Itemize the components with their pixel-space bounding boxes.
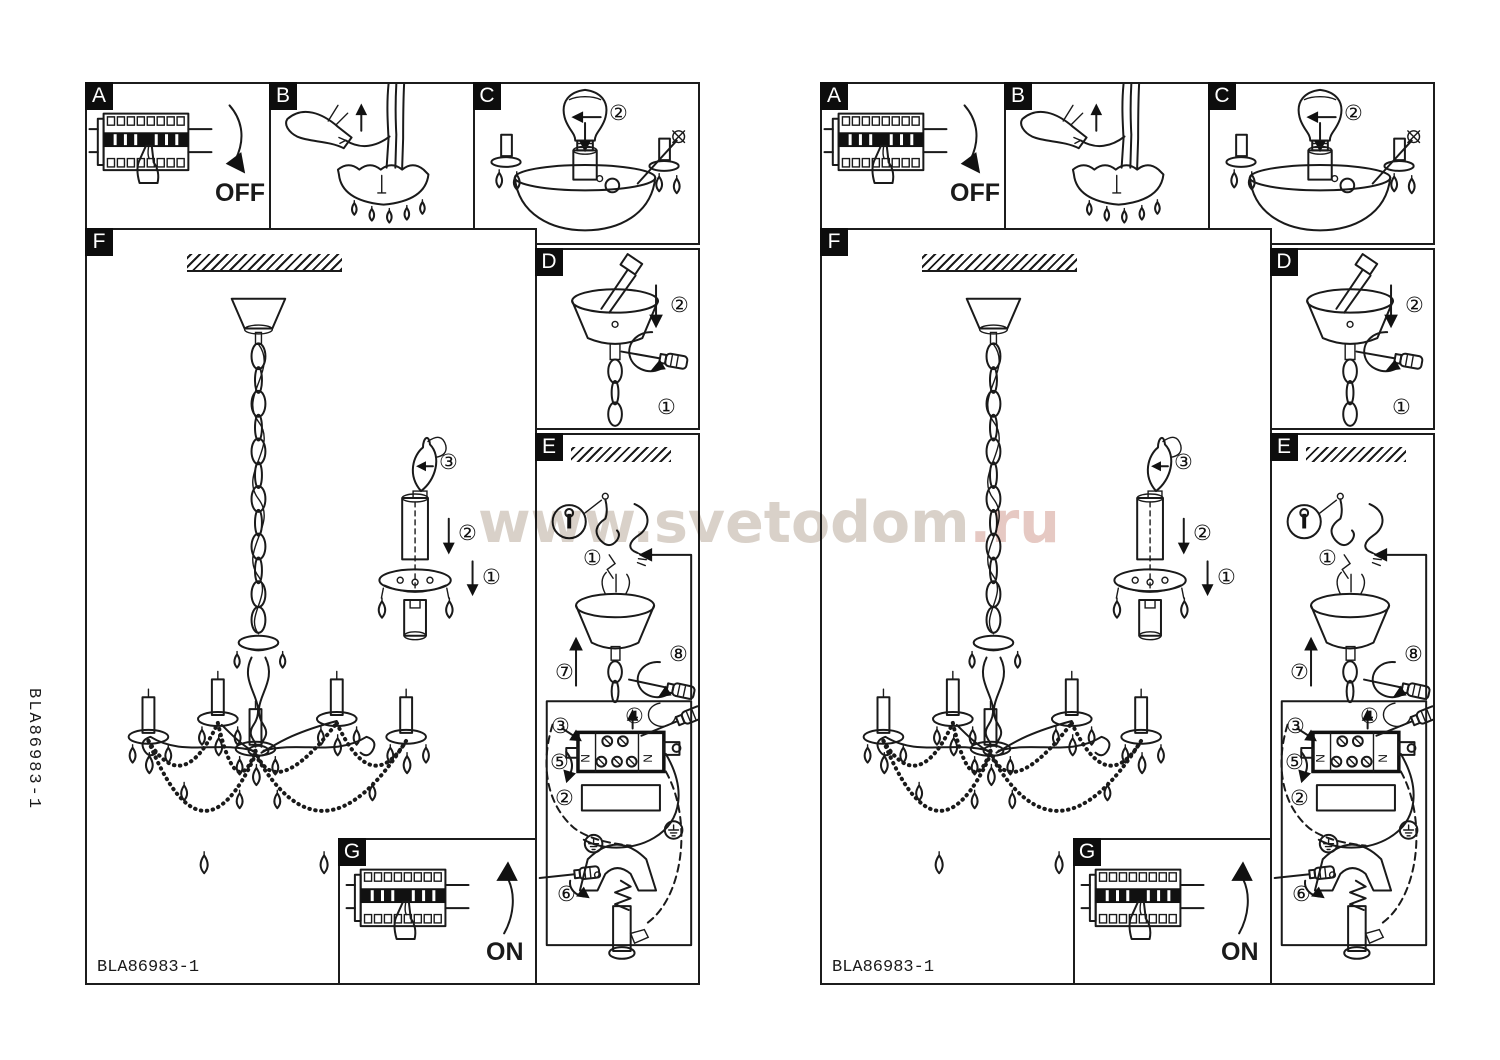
panel-e-wiring: E bbox=[535, 433, 700, 985]
breaker-icon bbox=[89, 114, 211, 183]
marker-cup: ① bbox=[1217, 566, 1236, 588]
model-code: BLA86983-1 bbox=[832, 958, 934, 977]
screw-detail-icon bbox=[553, 500, 602, 538]
panel-a-label: A bbox=[85, 82, 113, 110]
chain-icon bbox=[252, 343, 266, 633]
side-model-code: BLA86983-1 bbox=[24, 688, 43, 810]
screwdriver-icon bbox=[1355, 332, 1423, 371]
label-plate bbox=[582, 785, 660, 810]
panel-d-label: D bbox=[1270, 248, 1298, 276]
panel-e-wiring: E bbox=[1270, 433, 1435, 985]
ceiling-hatch bbox=[571, 447, 671, 462]
marker-term: ④ bbox=[625, 705, 644, 727]
panel-f-label: F bbox=[820, 228, 848, 256]
canopy-bowl-icon bbox=[338, 165, 428, 222]
canopy-icon bbox=[232, 299, 286, 345]
screwdriver-icon bbox=[1374, 703, 1433, 741]
instruction-page-2: A OFF B bbox=[820, 82, 1435, 985]
marker-lift: ⑦ bbox=[1290, 661, 1309, 683]
marker-clamp: ⑥ bbox=[1292, 883, 1311, 905]
on-arrow-icon bbox=[1231, 861, 1252, 933]
breaker-icon bbox=[1082, 870, 1204, 939]
on-text: ON bbox=[1221, 938, 1259, 967]
panel-c-shade-install: C bbox=[1208, 82, 1435, 245]
chain-icon bbox=[608, 359, 622, 425]
instruction-page-1: A OFF B bbox=[85, 82, 700, 985]
marker-bulb: ③ bbox=[439, 451, 458, 473]
panel-b-pull-wires: B bbox=[1004, 82, 1210, 230]
marker-tuck: ② bbox=[555, 787, 574, 809]
panel-g-label: G bbox=[338, 838, 366, 866]
mount-bracket-icon bbox=[1315, 845, 1391, 959]
canopy-cup-icon bbox=[1307, 289, 1393, 359]
canopy-bowl-icon bbox=[1073, 165, 1163, 222]
panel-d-label: D bbox=[535, 248, 563, 276]
chandelier-top-illustration bbox=[1210, 84, 1433, 243]
panel-g-power-on: G ON bbox=[338, 838, 537, 985]
terminal-block-icon: N N bbox=[566, 732, 680, 771]
candle-icon bbox=[198, 671, 241, 755]
ceiling-hatch bbox=[187, 254, 342, 272]
on-arrow-icon bbox=[496, 861, 517, 933]
up-arrow-icon bbox=[355, 103, 367, 130]
panel-b-label: B bbox=[269, 82, 297, 110]
marker-term: ④ bbox=[1360, 705, 1379, 727]
wires-icon bbox=[1074, 84, 1139, 168]
marker-wire: ③ bbox=[1286, 715, 1305, 737]
on-text: ON bbox=[486, 938, 524, 967]
panel-b-label: B bbox=[1004, 82, 1032, 110]
marker-shade: ② bbox=[1344, 102, 1363, 124]
marker-sleeve: ② bbox=[458, 522, 477, 544]
marker-bulb: ③ bbox=[1174, 451, 1193, 473]
mount-bracket-icon bbox=[580, 845, 656, 959]
panel-c-label: C bbox=[473, 82, 501, 110]
screwdriver-icon bbox=[1363, 662, 1431, 700]
off-text: OFF bbox=[950, 179, 1000, 208]
candle-icon bbox=[933, 671, 976, 755]
center-bowl-icon bbox=[515, 146, 655, 230]
svg-text:N: N bbox=[1315, 754, 1328, 762]
marker-tuck: ② bbox=[1290, 787, 1309, 809]
marker-hook: ① bbox=[583, 547, 602, 569]
center-bowl-icon bbox=[1250, 146, 1390, 230]
marker-push: ② bbox=[1405, 294, 1424, 316]
breaker-icon bbox=[347, 870, 469, 939]
panel-c-shade-install: C bbox=[473, 82, 700, 245]
marker-lift: ⑦ bbox=[555, 661, 574, 683]
marker-push: ② bbox=[670, 294, 689, 316]
panel-c-label: C bbox=[1208, 82, 1236, 110]
mount-bracket-icon bbox=[601, 254, 642, 313]
svg-text:N: N bbox=[642, 754, 655, 762]
canopy-icon bbox=[967, 299, 1021, 345]
breaker-icon bbox=[824, 114, 946, 183]
ground-symbol-icon bbox=[1400, 821, 1418, 839]
model-code: BLA86983-1 bbox=[97, 958, 199, 977]
hand-wires-illustration bbox=[271, 84, 473, 228]
chain-icon bbox=[987, 343, 1001, 633]
ground-symbol-icon bbox=[665, 821, 683, 839]
svg-text:N: N bbox=[1377, 754, 1390, 762]
panel-a-power-off: A OFF bbox=[820, 82, 1006, 230]
marker-side-screw: ⑧ bbox=[669, 643, 688, 665]
svg-text:N: N bbox=[580, 754, 593, 762]
screwdriver-icon bbox=[620, 332, 688, 371]
marker-side-screw: ⑧ bbox=[1404, 643, 1423, 665]
instruction-sheet: { "watermark": { "host": "www.svetodom",… bbox=[0, 0, 1500, 1060]
off-text: OFF bbox=[215, 179, 265, 208]
hand-wires-illustration bbox=[1006, 84, 1208, 228]
canopy-cup-icon bbox=[572, 289, 658, 359]
label-plate bbox=[1317, 785, 1395, 810]
panel-g-power-on: G ON bbox=[1073, 838, 1272, 985]
panel-f-label: F bbox=[85, 228, 113, 256]
off-arrow-icon bbox=[961, 105, 980, 173]
marker-cup: ① bbox=[482, 566, 501, 588]
marker-shade: ② bbox=[609, 102, 628, 124]
panel-e-label: E bbox=[535, 433, 563, 461]
screwdriver-icon bbox=[628, 662, 696, 700]
marker-screw: ① bbox=[1392, 396, 1411, 418]
panel-e-label: E bbox=[1270, 433, 1298, 461]
panel-b-pull-wires: B bbox=[269, 82, 475, 230]
mount-bracket-icon bbox=[1336, 254, 1377, 313]
marker-hook: ① bbox=[1318, 547, 1337, 569]
chain-icon bbox=[1343, 359, 1357, 425]
marker-wire: ③ bbox=[551, 715, 570, 737]
screwdriver-icon bbox=[639, 703, 698, 741]
terminal-block-icon: N N bbox=[1301, 732, 1415, 771]
marker-bend: ⑤ bbox=[1285, 751, 1304, 773]
up-arrow-icon bbox=[1090, 103, 1102, 130]
panel-d-canopy: D bbox=[535, 248, 700, 430]
marker-bend: ⑤ bbox=[550, 751, 569, 773]
ceiling-hatch bbox=[1306, 447, 1406, 462]
panel-d-canopy: D bbox=[1270, 248, 1435, 430]
panel-g-label: G bbox=[1073, 838, 1101, 866]
screw-detail-icon bbox=[1288, 500, 1337, 538]
marker-sleeve: ② bbox=[1193, 522, 1212, 544]
wires-icon bbox=[339, 84, 404, 168]
off-arrow-icon bbox=[226, 105, 245, 173]
marker-screw: ① bbox=[657, 396, 676, 418]
chandelier-top-illustration bbox=[475, 84, 698, 243]
marker-clamp: ⑥ bbox=[557, 883, 576, 905]
panel-a-label: A bbox=[820, 82, 848, 110]
panel-a-power-off: A OFF bbox=[85, 82, 271, 230]
ceiling-hatch bbox=[922, 254, 1077, 272]
